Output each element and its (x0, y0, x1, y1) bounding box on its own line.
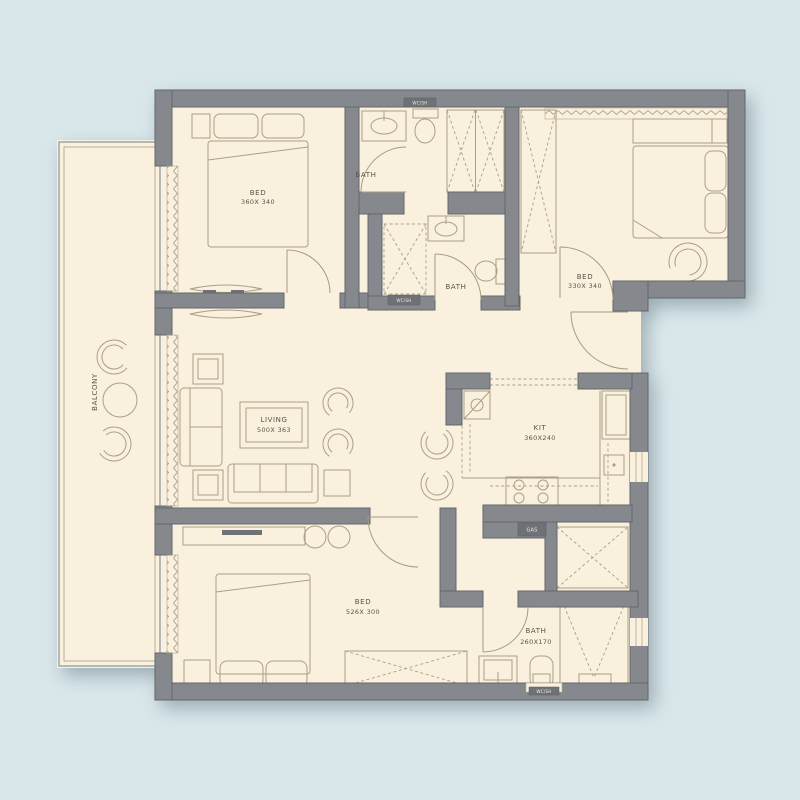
bed2-label: BED (577, 273, 593, 281)
wall-storage-left (545, 522, 557, 591)
wall-wing-right (728, 90, 745, 298)
wall-kitchen-l-horiz (446, 373, 490, 389)
window-living (167, 335, 178, 506)
bed1-dims: 360X 340 (241, 198, 275, 206)
wall-kitchen-top-r (578, 373, 632, 389)
kitchen-dims: 360X240 (524, 434, 556, 442)
kitchen-label: KIT (534, 424, 547, 432)
wall-bath3-top-l (440, 591, 483, 607)
bed1-label: BED (250, 189, 266, 197)
window-bed3 (167, 555, 178, 653)
wall-bed1-east (345, 107, 359, 308)
wall-bed1-living (155, 293, 284, 308)
floor-plan-screen: BALCONY (0, 0, 800, 800)
wc-tag-top-text: WC/SH (412, 101, 427, 106)
wall-living-bed3 (155, 508, 370, 524)
wall-top (155, 90, 745, 107)
wall-right (630, 373, 648, 700)
wc-tag-bottom-text: WC/SH (536, 689, 551, 694)
bed3-dims: 526X 300 (346, 608, 380, 616)
living-dims: 500X 363 (257, 426, 291, 434)
wall-entry-corner (613, 281, 648, 311)
balcony-label: BALCONY (91, 373, 99, 411)
tv (222, 530, 262, 535)
window-kitchen (630, 452, 648, 482)
window-bed1 (167, 166, 178, 291)
gas-tag-text: GAS (526, 528, 537, 534)
balcony: BALCONY (57, 140, 169, 668)
wall-bed2-west (505, 107, 519, 306)
wall-bath-mid-b (448, 192, 505, 214)
floor-plan: BALCONY (0, 0, 800, 800)
wc-tag-mid-text: WC/SH (396, 298, 411, 303)
wall-wing-bottom (641, 281, 745, 298)
bath2-label: BATH (446, 283, 467, 291)
sink-drain (612, 463, 615, 466)
window-bed2 (545, 108, 727, 119)
living-label: LIVING (260, 416, 287, 424)
wall-bath-mid-a (359, 192, 404, 214)
bath1-label: BATH (356, 171, 377, 179)
wall-left-top (155, 90, 172, 166)
bed2-dims: 330X 340 (568, 282, 602, 290)
bath3-dims: 260X170 (520, 638, 552, 646)
wall-kitchen-bottom (483, 505, 632, 522)
bath3-label: BATH (526, 627, 547, 635)
wall-left-bottom (155, 653, 172, 700)
wall-bath3-top-r (518, 591, 638, 607)
bed3-label: BED (355, 598, 371, 606)
window-bath3 (630, 618, 648, 646)
wall-bottom (155, 683, 648, 700)
balcony-floor (57, 140, 169, 668)
